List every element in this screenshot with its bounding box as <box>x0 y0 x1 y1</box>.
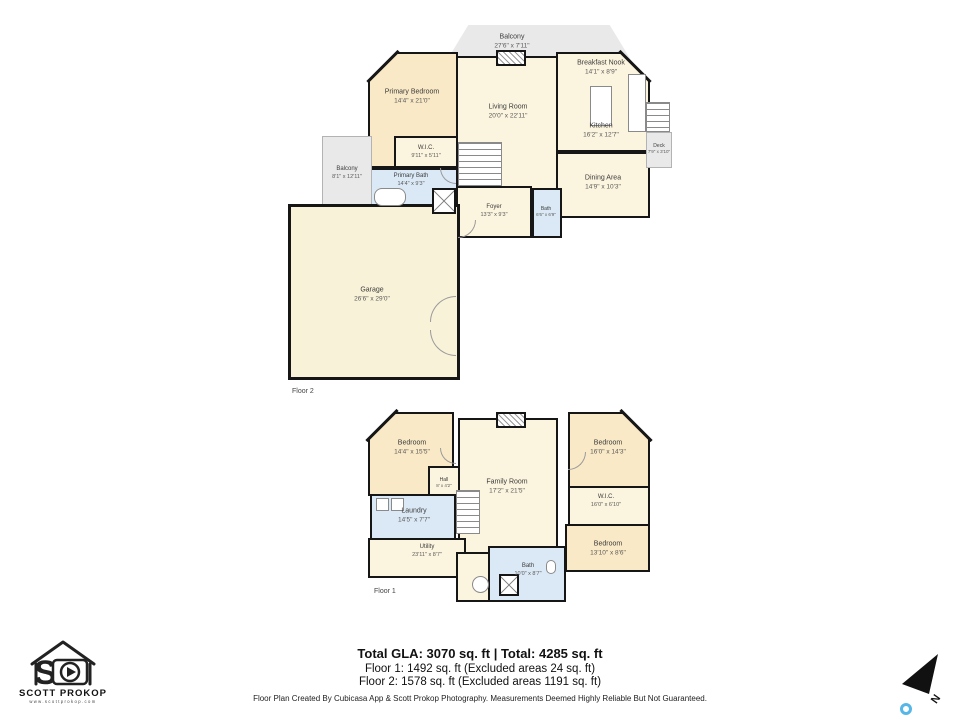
label-garage: Garage 26'6" x 29'0" <box>354 287 390 304</box>
label-kitchen: Kitchen 16'2" x 12'7" <box>583 123 619 140</box>
floor1-caption: Floor 1 <box>374 588 396 595</box>
label-balcony-left: Balcony 8'1" x 12'11" <box>332 166 362 180</box>
washer <box>376 498 389 511</box>
water-heater <box>472 576 489 593</box>
north-arrow-icon <box>902 654 938 694</box>
disclaimer-text: Floor Plan Created By Cubicasa App & Sco… <box>0 694 960 703</box>
label-living-room: Living Room 20'0" x 22'11" <box>489 104 528 121</box>
kitchen-island <box>590 86 612 126</box>
location-dot-icon <box>902 705 911 714</box>
exterior-stairs <box>646 102 670 132</box>
label-family-room: Family Room 17'2" x 21'5" <box>486 479 527 496</box>
label-bath-floor1: Bath 10'0" x 8'7" <box>514 563 541 577</box>
shower-floor1 <box>499 574 519 596</box>
logo-scott-prokop: S SCOTT PROKOP www.scottprokop.com <box>18 634 108 710</box>
logo-name: SCOTT PROKOP <box>19 688 107 699</box>
label-balcony-top: Balcony 27'6" x 7'11" <box>494 34 529 51</box>
kitchen-counter <box>628 74 646 132</box>
label-laundry: Laundry 14'5" x 7'7" <box>398 508 430 525</box>
label-utility: Utility 23'11" x 8'7" <box>412 544 442 558</box>
logo-url: www.scottprokop.com <box>29 699 96 704</box>
compass-n-label: N <box>929 693 943 706</box>
label-wic-floor1: W.I.C. 16'0" x 6'10" <box>591 494 621 508</box>
label-foyer: Foyer 13'3" x 9'3" <box>480 204 507 218</box>
floor1-area-line: Floor 1: 1492 sq. ft (Excluded areas 24 … <box>0 663 960 675</box>
label-bedroom-left: Bedroom 14'4" x 15'5" <box>394 440 430 457</box>
floorplan-canvas: Balcony 27'6" x 7'11" Primary Bedroom 14… <box>0 0 960 720</box>
bathtub <box>374 188 406 206</box>
floor2-area-line: Floor 2: 1578 sq. ft (Excluded areas 119… <box>0 676 960 688</box>
fireplace-hatch-floor2 <box>496 50 526 66</box>
toilet <box>546 560 556 574</box>
north-arrow: N <box>896 650 948 716</box>
shower-floor2 <box>432 188 456 214</box>
label-bedroom-bottom: Bedroom 13'10" x 8'6" <box>590 541 626 558</box>
label-breakfast-nook: Breakfast Nook 14'1" x 8'9" <box>577 60 625 77</box>
label-primary-bath: Primary Bath 14'4" x 9'3" <box>394 173 429 187</box>
total-gla-line: Total GLA: 3070 sq. ft | Total: 4285 sq.… <box>0 646 960 661</box>
label-primary-bedroom: Primary Bedroom 14'4" x 21'0" <box>385 89 439 106</box>
staircase-floor2 <box>458 142 502 186</box>
floor2-caption: Floor 2 <box>292 388 314 395</box>
label-hall: Hall 8' x 4'2" <box>436 477 452 489</box>
fireplace-hatch-floor1 <box>496 412 526 428</box>
staircase-floor1 <box>456 490 480 534</box>
house-camera-icon: S <box>32 642 94 692</box>
label-dining-area: Dining Area 14'9" x 10'3" <box>585 175 621 192</box>
area-summary: Total GLA: 3070 sq. ft | Total: 4285 sq.… <box>0 646 960 689</box>
label-deck: Deck 7'9" x 3'10" <box>648 143 670 155</box>
label-bedroom-right: Bedroom 16'0" x 14'3" <box>590 440 626 457</box>
label-wic-floor2: W.I.C. 9'11" x 5'11" <box>411 145 440 159</box>
label-bath-floor2: Bath 6'6" x 6'9" <box>536 206 556 218</box>
